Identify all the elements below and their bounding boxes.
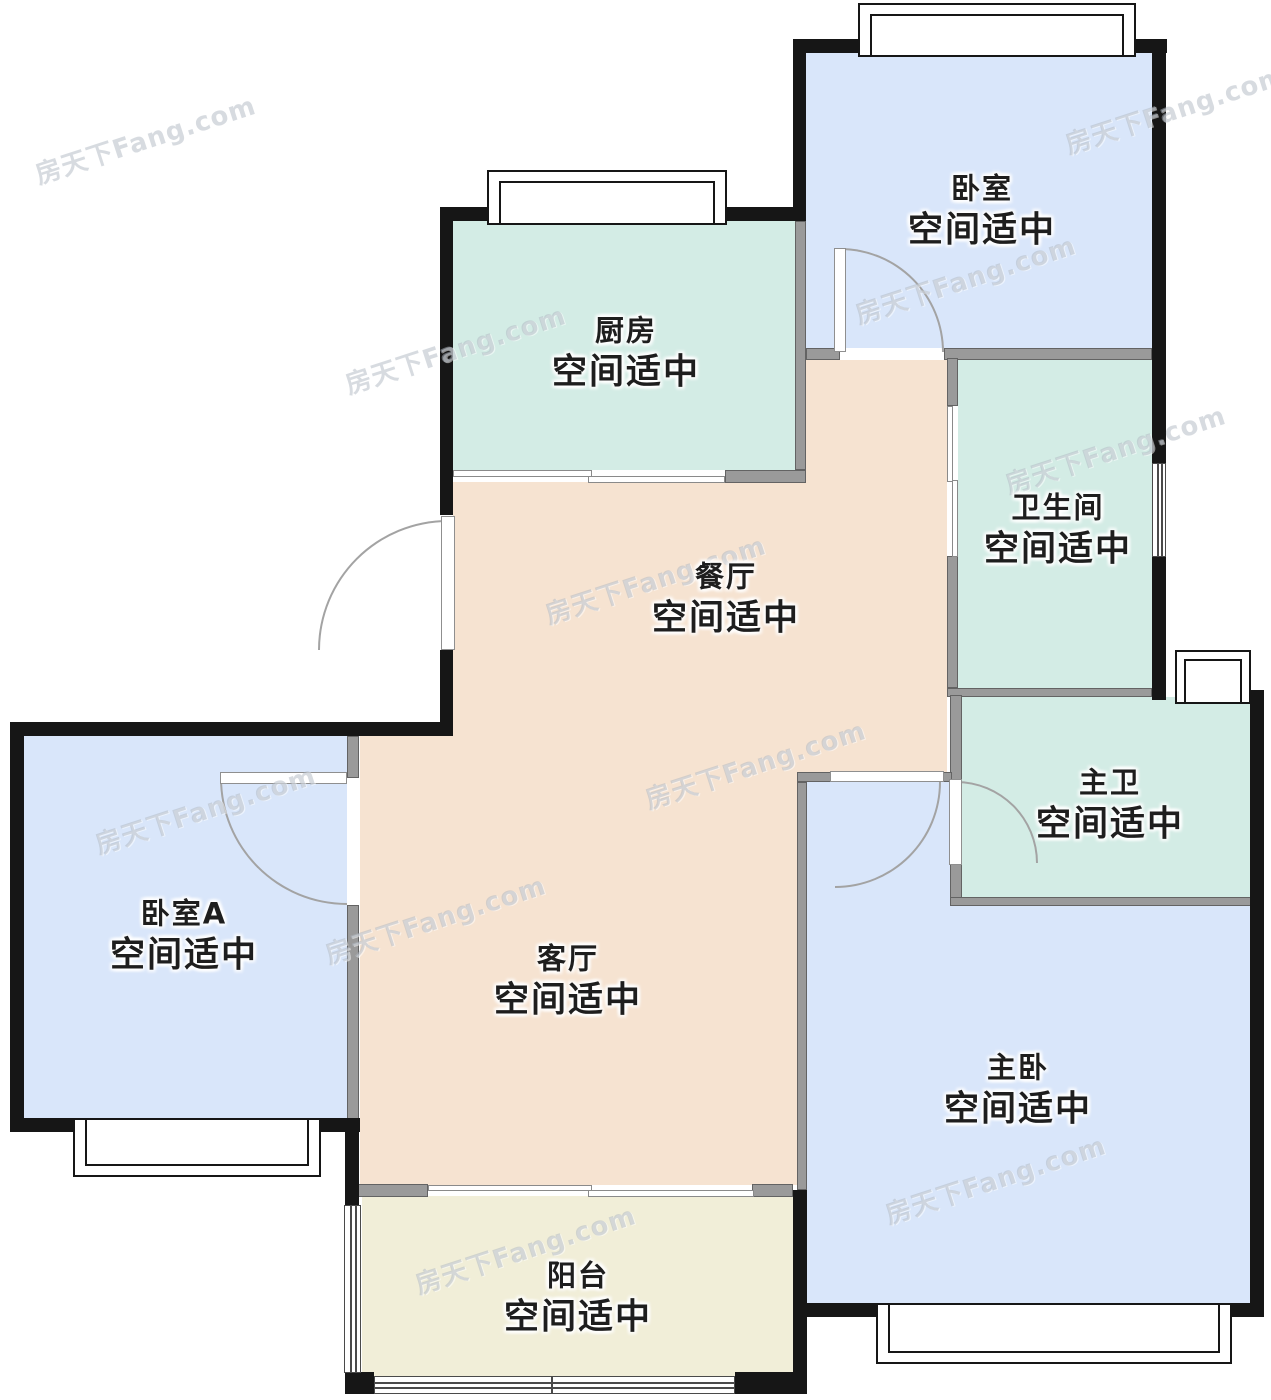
wall: [10, 722, 24, 1132]
room-name: 主卫: [1036, 764, 1184, 802]
room-label-master-bedroom: 主卧 空间适中: [944, 1049, 1092, 1132]
door-leaf-master-bath: [949, 779, 962, 865]
wall: [793, 39, 806, 215]
room-status: 空间适中: [944, 1087, 1092, 1133]
room-label-dining: 餐厅 空间适中: [652, 558, 800, 641]
room-status: 空间适中: [984, 527, 1132, 573]
room-name: 卧室: [908, 170, 1056, 208]
window-balcony-side: [344, 1205, 361, 1373]
room-status: 空间适中: [494, 978, 642, 1024]
room-label-master-bath: 主卫 空间适中: [1036, 764, 1184, 847]
wall: [793, 1303, 880, 1317]
room-status: 空间适中: [552, 350, 700, 396]
door-opening-bedroom-a: [347, 778, 359, 905]
room-fill-dining-east: [806, 360, 947, 772]
window-mullion: [375, 1382, 734, 1384]
room-name: 卫生间: [984, 489, 1132, 527]
window-mullion: [355, 1206, 357, 1372]
room-fill-living-west: [360, 736, 453, 1185]
sliding-door-bathroom: [947, 406, 953, 482]
bay-window-inner: [499, 181, 715, 225]
bay-window-inner: [85, 1118, 309, 1166]
wall: [795, 221, 806, 470]
flue-duct: [1175, 650, 1251, 704]
window-mullion: [551, 1377, 553, 1393]
sliding-door-balcony: [428, 1185, 592, 1191]
sliding-door-balcony: [588, 1190, 754, 1197]
window-bathroom: [1152, 463, 1166, 557]
wall: [944, 348, 1152, 360]
wall: [10, 722, 453, 736]
room-label-living: 客厅 空间适中: [494, 940, 642, 1023]
room-label-bedroom-north: 卧室 空间适中: [908, 170, 1056, 253]
wall: [347, 736, 359, 778]
bay-window-inner: [888, 1303, 1220, 1353]
window-mullion: [350, 1206, 352, 1372]
wall: [950, 897, 1253, 906]
sliding-door-kitchen: [588, 476, 725, 483]
watermark: 房天下Fang.com: [30, 85, 260, 191]
door-leaf-entrance: [441, 516, 455, 650]
window-mullion: [1161, 464, 1163, 556]
bay-window-bedroom-north: [858, 3, 1136, 57]
room-status: 空间适中: [1036, 802, 1184, 848]
room-name: 厨房: [552, 312, 700, 350]
room-name: 客厅: [494, 940, 642, 978]
wall: [793, 1190, 807, 1394]
floor-plan: 房天下Fang.com 房天下Fang.com 房天下Fang.com 房天下F…: [0, 0, 1271, 1400]
wall: [947, 556, 958, 688]
sliding-door-bathroom: [952, 480, 958, 557]
room-label-kitchen: 厨房 空间适中: [552, 312, 700, 395]
room-name: 阳台: [504, 1257, 652, 1295]
room-label-balcony: 阳台 空间适中: [504, 1257, 652, 1340]
wall: [947, 358, 958, 406]
door-leaf-master-bedroom: [830, 771, 944, 782]
window-mullion: [375, 1387, 734, 1389]
flue-duct-inner: [1184, 659, 1242, 704]
bay-window-inner: [870, 14, 1124, 57]
room-status: 空间适中: [908, 208, 1056, 254]
wall: [797, 782, 807, 1190]
window-mullion: [1157, 464, 1159, 556]
bay-window-bedroom-a: [73, 1118, 321, 1177]
room-status: 空间适中: [504, 1295, 652, 1341]
wall: [950, 695, 962, 782]
bay-window-kitchen: [487, 170, 727, 225]
wall: [345, 1125, 359, 1207]
sliding-door-kitchen: [453, 470, 592, 477]
room-label-bathroom: 卫生间 空间适中: [984, 489, 1132, 572]
room-status: 空间适中: [110, 933, 258, 979]
wall: [947, 688, 1152, 697]
window-balcony-front: [374, 1376, 735, 1394]
room-name: 餐厅: [652, 558, 800, 596]
wall: [1250, 690, 1264, 1317]
room-name: 卧室A: [110, 895, 258, 933]
bay-window-master-bedroom: [876, 1303, 1232, 1364]
wall: [797, 772, 832, 782]
room-name: 主卧: [944, 1049, 1092, 1087]
room-status: 空间适中: [652, 596, 800, 642]
wall: [725, 470, 806, 483]
wall: [752, 1184, 793, 1197]
wall: [1152, 557, 1166, 700]
wall: [345, 1372, 374, 1394]
door-arc-entrance: [318, 520, 448, 650]
wall: [358, 1184, 428, 1197]
room-label-bedroom-a: 卧室A 空间适中: [110, 895, 258, 978]
door-leaf-bedroom-north: [834, 248, 846, 352]
